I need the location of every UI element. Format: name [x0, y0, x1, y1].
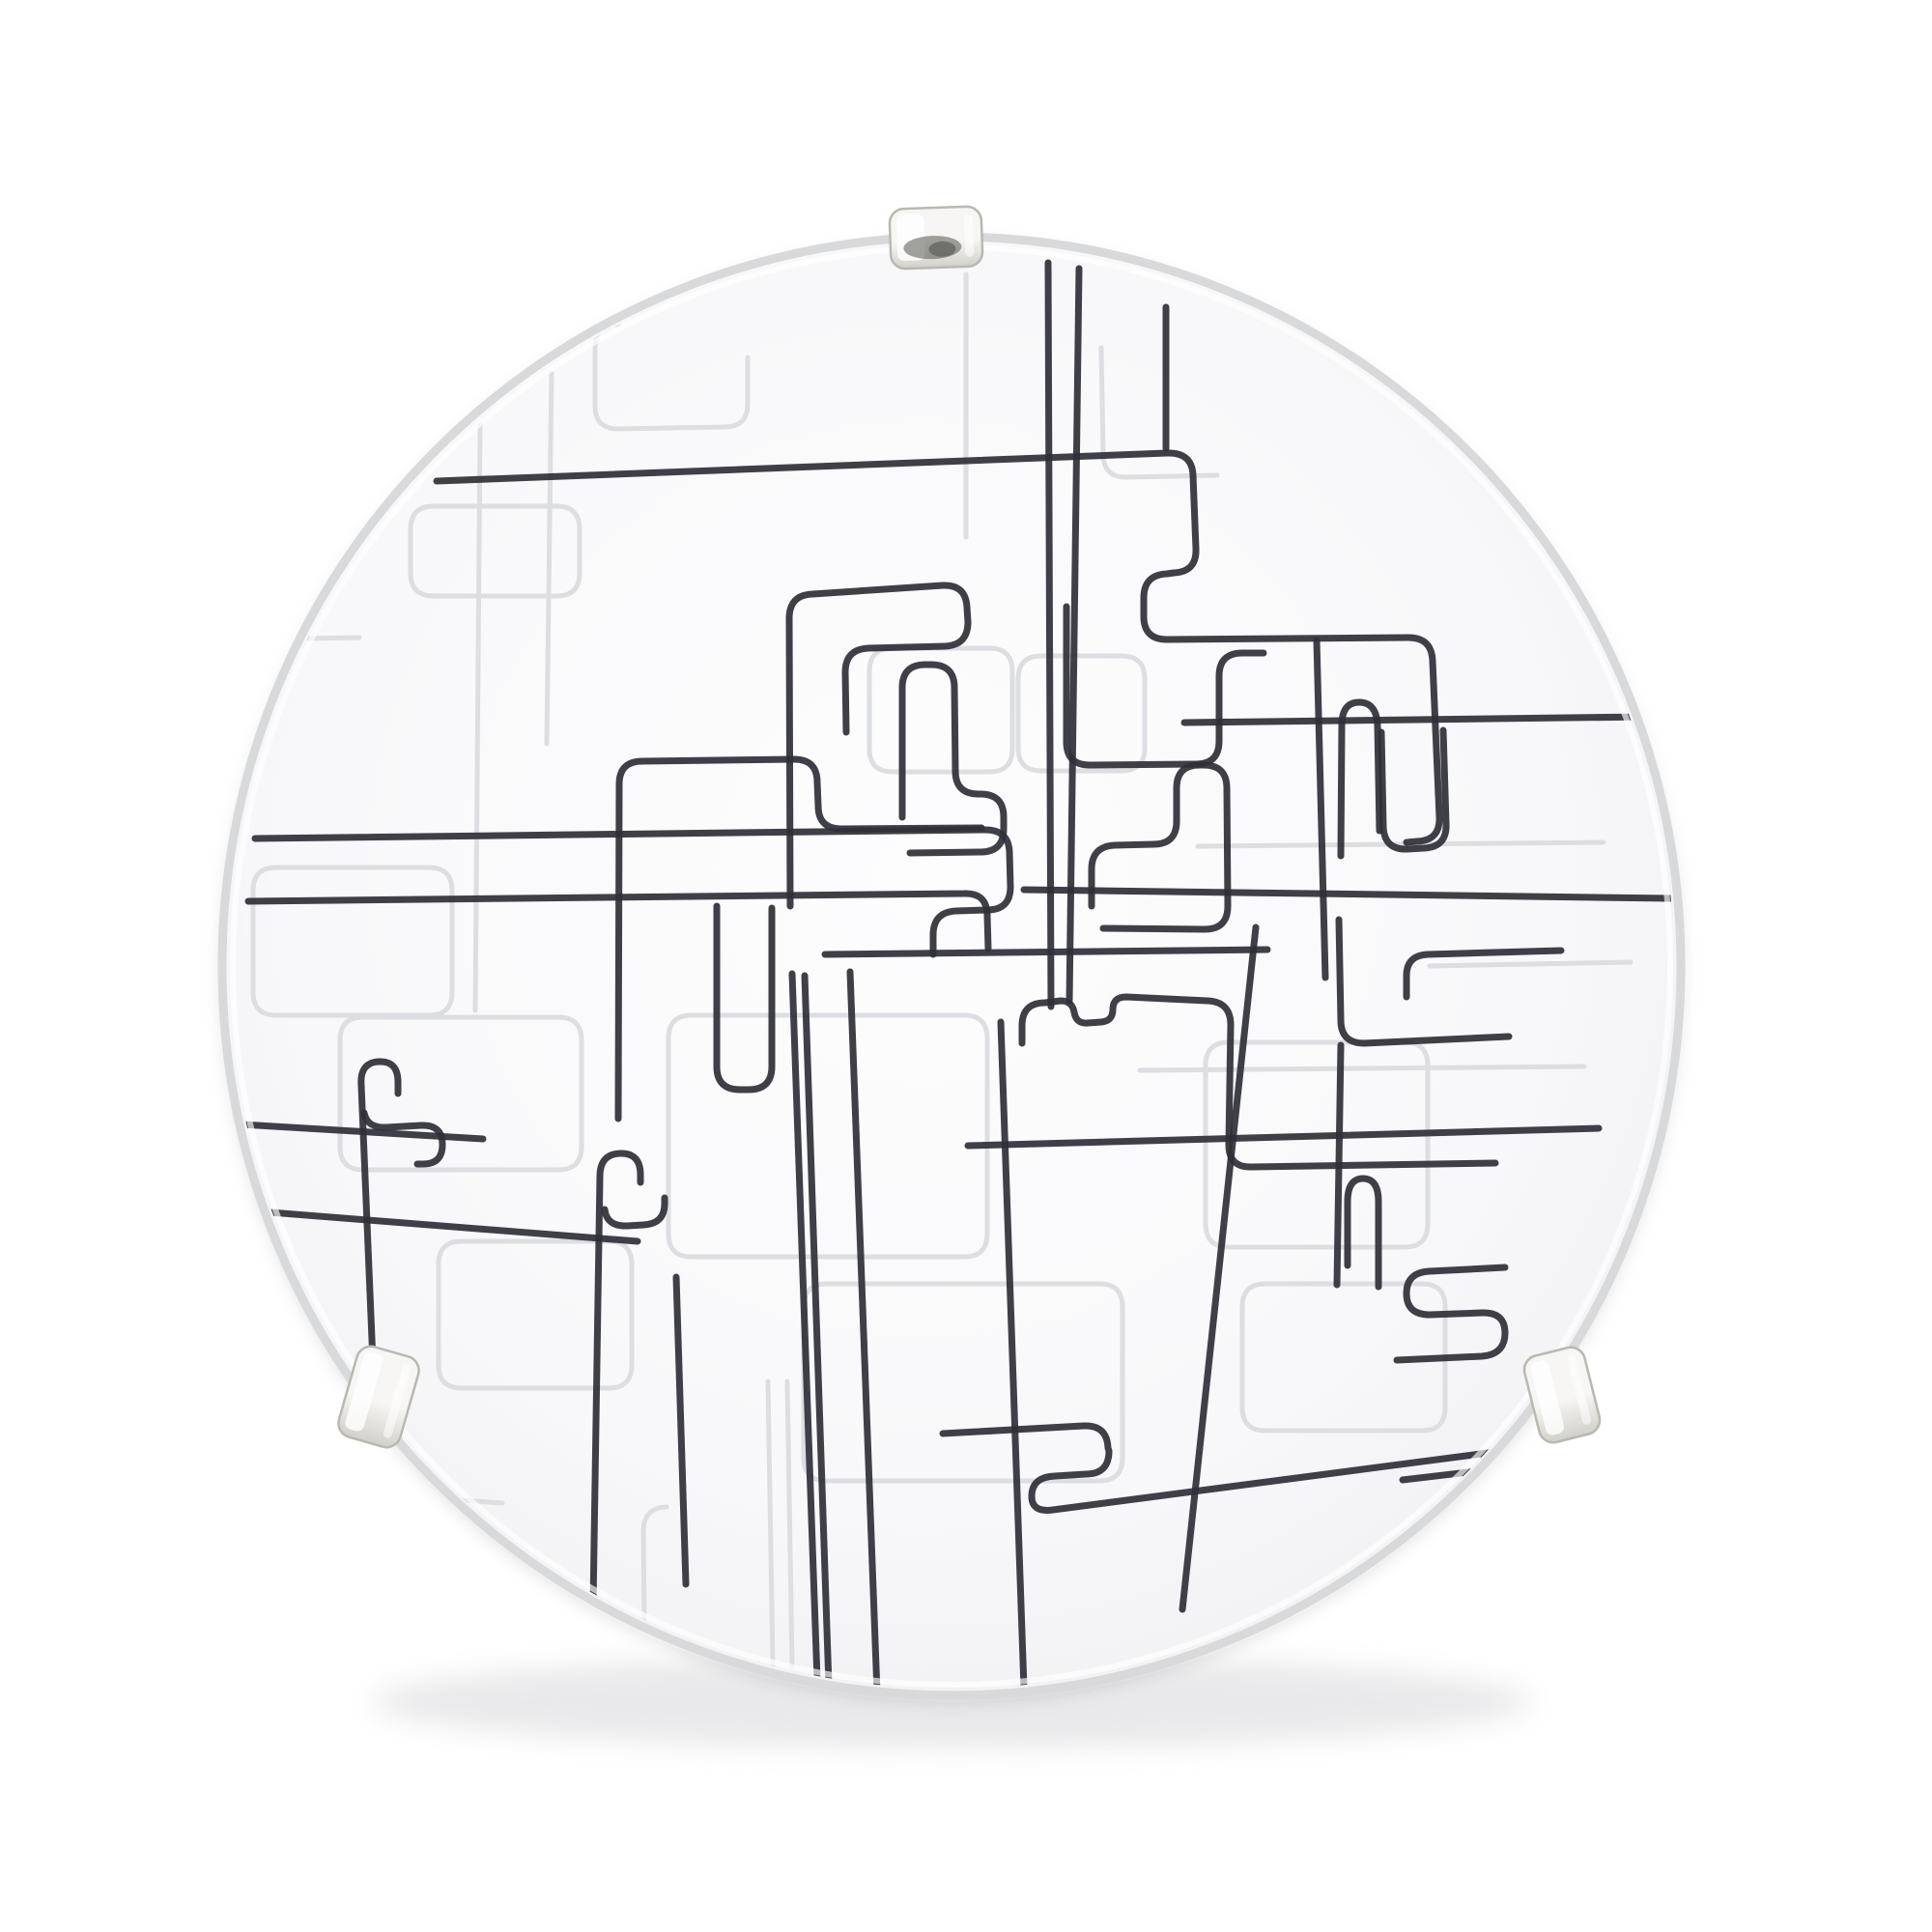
product-photo-canvas [0, 0, 1932, 1932]
ceiling-light-photo [0, 0, 1932, 1932]
clip-top [889, 206, 982, 269]
maze-line-3 [1048, 263, 1051, 1007]
clip-top-highlight-2 [964, 214, 975, 257]
clip-right [1521, 1345, 1603, 1446]
maze-line-15 [825, 950, 1267, 954]
maze-line-18 [1337, 1045, 1341, 1285]
